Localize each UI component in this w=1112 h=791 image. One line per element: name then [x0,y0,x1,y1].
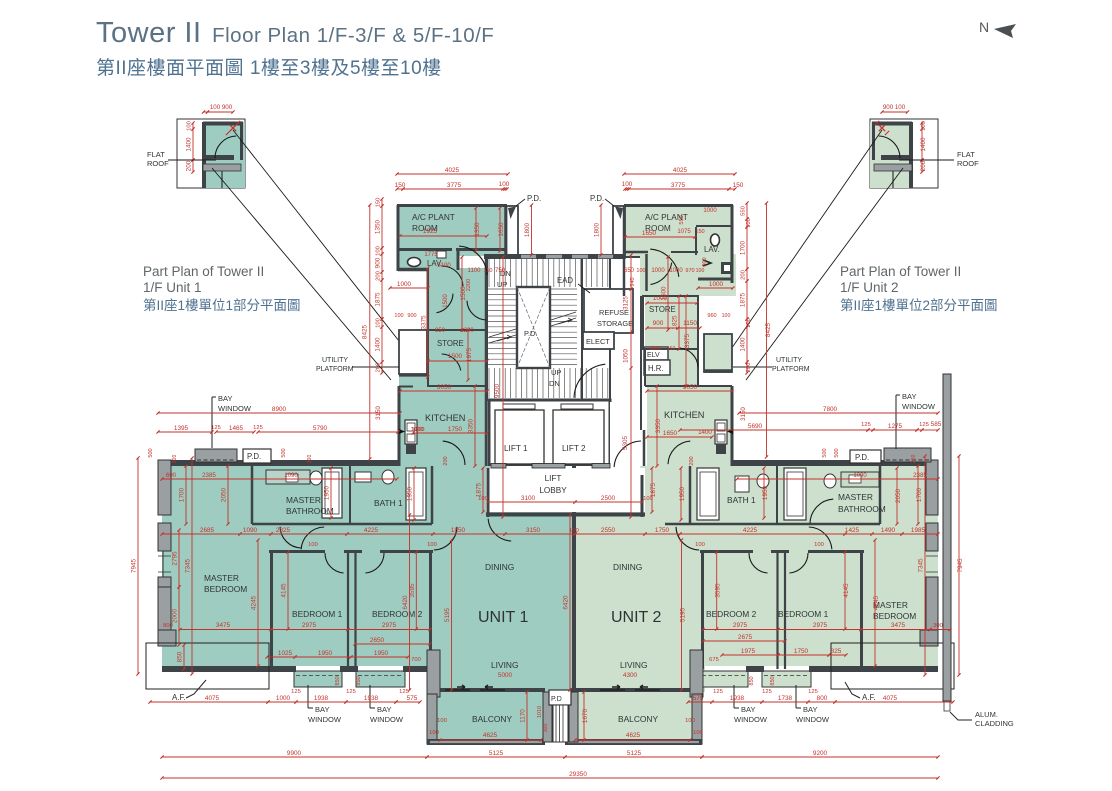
svg-text:1/F Unit 2: 1/F Unit 2 [840,280,899,295]
svg-text:675: 675 [709,657,719,663]
svg-text:LAV.: LAV. [704,245,720,254]
svg-text:1170: 1170 [520,709,527,723]
svg-text:1938: 1938 [730,695,745,702]
svg-text:100 900: 100 900 [210,104,233,111]
svg-text:UNIT 1: UNIT 1 [478,609,528,626]
svg-text:PLATFORM: PLATFORM [316,366,354,373]
svg-text:200: 200 [172,455,178,464]
svg-text:A.F.: A.F. [862,693,876,702]
svg-text:500: 500 [148,448,154,457]
svg-text:125: 125 [346,689,356,695]
svg-text:125: 125 [253,425,263,431]
svg-text:3050: 3050 [683,384,698,391]
svg-text:UNIT 2: UNIT 2 [611,609,661,626]
svg-text:9500: 9500 [494,383,501,398]
svg-text:FLAT: FLAT [957,150,975,159]
svg-text:BAY: BAY [218,394,232,403]
svg-text:3150: 3150 [740,407,747,421]
svg-text:2000: 2000 [172,608,179,623]
svg-text:Part Plan of Tower II: Part Plan of Tower II [840,264,961,279]
svg-text:575: 575 [407,695,418,702]
svg-text:200: 200 [920,160,927,171]
svg-text:1750: 1750 [655,527,670,534]
svg-text:8900: 8900 [272,406,287,413]
svg-text:P.D.: P.D. [527,194,541,203]
svg-text:900: 900 [653,320,664,327]
svg-text:2975: 2975 [733,622,748,629]
svg-text:1100: 1100 [468,268,482,274]
svg-text:BATHROOM: BATHROOM [838,504,886,514]
svg-text:1400: 1400 [920,137,927,152]
svg-text:1000: 1000 [709,281,724,288]
svg-text:5125: 5125 [627,750,642,757]
svg-text:P.D.: P.D. [855,453,869,462]
svg-text:200: 200 [911,455,917,464]
svg-text:4145: 4145 [843,583,850,598]
svg-text:3350: 3350 [468,418,475,433]
svg-text:900: 900 [375,257,382,268]
svg-text:100: 100 [394,313,403,319]
svg-text:550: 550 [741,206,747,216]
svg-text:5195: 5195 [444,607,451,622]
svg-text:1650: 1650 [642,230,657,237]
svg-text:ROOF: ROOF [147,159,169,168]
svg-text:1950: 1950 [407,486,414,501]
svg-text:4625: 4625 [483,732,498,739]
svg-text:4225: 4225 [743,527,758,534]
svg-text:1000: 1000 [669,268,683,274]
svg-text:200: 200 [741,270,747,280]
svg-text:KITCHEN: KITCHEN [664,410,704,420]
svg-text:MASTER: MASTER [838,492,873,502]
svg-text:1465: 1465 [229,425,244,432]
svg-text:1395: 1395 [174,425,189,432]
svg-text:2975: 2975 [813,622,828,629]
svg-text:5790: 5790 [313,425,328,432]
svg-text:2795: 2795 [172,551,179,566]
svg-text:1000: 1000 [703,208,717,214]
svg-text:500: 500 [834,448,840,457]
svg-text:4025: 4025 [673,167,688,174]
svg-text:750: 750 [495,268,506,274]
svg-text:1775: 1775 [424,252,438,258]
svg-text:BAY: BAY [315,705,329,714]
svg-text:1750: 1750 [448,426,463,433]
svg-text:P.D.: P.D. [590,194,604,203]
svg-text:125: 125 [861,422,871,428]
svg-text:850: 850 [770,676,776,685]
svg-text:1800: 1800 [524,222,531,237]
svg-text:300: 300 [933,623,943,629]
svg-text:4145: 4145 [281,583,288,598]
svg-text:BATH 1: BATH 1 [374,498,403,508]
svg-text:200: 200 [443,456,449,465]
svg-text:BEDROOM 1: BEDROOM 1 [778,609,829,619]
svg-text:1050: 1050 [623,349,630,363]
svg-text:WINDOW: WINDOW [370,715,404,724]
svg-text:3100: 3100 [521,495,536,502]
svg-text:200: 200 [746,363,752,373]
svg-text:4245: 4245 [251,595,258,610]
svg-text:1938: 1938 [314,695,329,702]
svg-text:125: 125 [713,689,723,695]
svg-text:150: 150 [695,229,704,235]
svg-text:A.F.: A.F. [172,693,186,702]
svg-text:1500: 1500 [443,294,449,308]
svg-text:2385: 2385 [202,472,216,479]
svg-text:1400: 1400 [186,137,193,152]
svg-text:1010: 1010 [537,706,543,718]
svg-text:ALUM.: ALUM. [975,710,998,719]
svg-text:300: 300 [543,724,549,733]
svg-text:900: 900 [702,257,708,266]
svg-text:100: 100 [696,268,705,274]
svg-text:5100: 5100 [437,263,451,269]
svg-text:BEDROOM: BEDROOM [204,584,247,594]
svg-text:3150: 3150 [375,406,382,420]
svg-text:1875: 1875 [740,292,747,307]
svg-text:850: 850 [435,328,446,334]
svg-text:1650: 1650 [498,222,505,237]
svg-text:100: 100 [636,268,645,274]
svg-text:UP: UP [551,368,561,377]
svg-text:1950: 1950 [762,485,769,500]
svg-text:1875: 1875 [375,292,382,307]
svg-text:8425: 8425 [362,324,369,339]
svg-text:500: 500 [822,448,828,457]
svg-text:1700: 1700 [740,240,747,255]
svg-text:825: 825 [831,648,842,655]
svg-text:1975: 1975 [466,347,473,362]
svg-text:110: 110 [484,268,493,274]
svg-text:100: 100 [693,730,703,736]
svg-text:9900: 9900 [287,750,302,757]
svg-text:1000: 1000 [649,346,662,352]
svg-text:BATH 1: BATH 1 [727,495,756,505]
svg-text:FLAT: FLAT [147,150,165,159]
svg-text:200: 200 [186,160,193,171]
svg-text:3050: 3050 [437,384,452,391]
svg-text:DINING: DINING [613,562,642,572]
svg-text:EAD: EAD [557,276,573,285]
svg-text:1000: 1000 [276,695,291,702]
svg-text:Part Plan of Tower II: Part Plan of Tower II [143,264,264,279]
svg-text:MASTER: MASTER [286,495,321,505]
svg-text:1500: 1500 [661,286,668,301]
svg-text:1075: 1075 [677,229,691,235]
svg-text:KITCHEN: KITCHEN [425,413,465,423]
svg-text:200: 200 [307,455,313,464]
svg-text:125: 125 [211,425,221,431]
svg-text:100: 100 [308,542,318,548]
svg-text:650: 650 [624,268,635,274]
svg-text:800: 800 [817,695,828,702]
svg-text:N: N [979,19,989,35]
svg-text:100: 100 [722,313,731,319]
svg-text:1000: 1000 [397,281,412,288]
svg-text:BEDROOM 2: BEDROOM 2 [706,609,757,619]
svg-text:LOBBY: LOBBY [539,486,567,495]
svg-text:1750: 1750 [794,648,809,655]
svg-text:1150: 1150 [683,320,697,327]
svg-text:7945: 7945 [131,558,138,573]
svg-text:1275: 1275 [888,423,903,430]
svg-text:3375: 3375 [684,333,691,348]
svg-text:800: 800 [163,623,173,629]
svg-text:BAY: BAY [902,392,916,401]
svg-text:1400: 1400 [375,337,382,352]
svg-text:5125: 5125 [489,750,504,757]
svg-text:550: 550 [679,215,685,224]
svg-text:2050: 2050 [221,487,228,502]
svg-text:WINDOW: WINDOW [796,715,830,724]
svg-text:850: 850 [177,651,184,662]
svg-text:100: 100 [376,318,382,328]
svg-text:4225: 4225 [364,527,379,534]
svg-text:UP: UP [497,280,507,289]
svg-text:ELECT: ELECT [586,337,610,346]
svg-text:125: 125 [919,422,929,428]
svg-text:3775: 3775 [671,182,686,189]
svg-text:2550: 2550 [601,527,616,534]
svg-text:WINDOW: WINDOW [902,402,936,411]
svg-text:DN: DN [549,379,560,388]
svg-text:3350: 3350 [655,418,662,433]
svg-text:2500: 2500 [601,495,616,502]
svg-text:29350: 29350 [569,771,587,778]
svg-text:575: 575 [693,695,704,702]
svg-text:1400: 1400 [698,429,712,436]
svg-text:150: 150 [667,346,676,352]
svg-text:3775: 3775 [447,182,462,189]
svg-text:100: 100 [429,730,439,736]
svg-text:WINDOW: WINDOW [218,404,252,413]
svg-text:P.D: P.D [551,696,562,703]
svg-text:UTILITY: UTILITY [776,357,802,364]
svg-text:850: 850 [749,676,755,685]
svg-text:150: 150 [376,198,382,208]
svg-text:第II座樓面平面圖 1樓至3樓及5樓至10樓: 第II座樓面平面圖 1樓至3樓及5樓至10樓 [96,57,442,79]
svg-text:A/C PLANT: A/C PLANT [412,212,455,222]
svg-text:100: 100 [376,246,382,256]
svg-text:3375: 3375 [420,315,427,330]
svg-text:STORE: STORE [649,305,676,314]
svg-text:CLADDING: CLADDING [975,719,1014,728]
svg-text:1500: 1500 [448,353,463,360]
svg-text:3595: 3595 [715,583,722,598]
svg-text:P.D.: P.D. [247,452,261,461]
svg-text:4075: 4075 [205,695,220,702]
svg-text:200: 200 [376,271,382,281]
svg-text:LIVING: LIVING [620,660,647,670]
svg-text:9200: 9200 [813,750,828,757]
svg-text:1985: 1985 [911,527,926,534]
svg-text:5195: 5195 [680,607,687,622]
svg-text:BEDROOM 1: BEDROOM 1 [292,609,343,619]
svg-text:DINING: DINING [485,562,514,572]
svg-text:LIFT 2: LIFT 2 [562,444,586,453]
svg-text:100: 100 [685,718,695,724]
svg-text:100: 100 [695,542,705,548]
svg-text:1875: 1875 [650,482,657,497]
svg-text:UTILITY: UTILITY [322,357,348,364]
svg-text:1000: 1000 [651,268,665,274]
svg-text:3150: 3150 [526,527,541,534]
svg-text:STORAGE: STORAGE [597,319,633,328]
svg-text:BATHROOM: BATHROOM [286,506,334,516]
svg-text:1850: 1850 [451,527,466,534]
svg-text:BAY: BAY [803,705,817,714]
svg-text:1025: 1025 [278,650,293,657]
svg-text:1350: 1350 [474,222,481,237]
svg-text:100: 100 [499,181,510,188]
svg-text:1425: 1425 [845,527,860,534]
svg-text:BEDROOM: BEDROOM [873,611,916,621]
svg-text:1670: 1670 [582,708,589,723]
svg-text:6420: 6420 [563,595,570,610]
svg-text:600: 600 [166,473,177,479]
svg-text:3595: 3595 [409,583,416,598]
svg-text:3475: 3475 [216,622,231,629]
svg-text:1350: 1350 [375,219,382,234]
svg-text:1800: 1800 [594,222,601,237]
svg-text:960: 960 [707,313,716,319]
svg-text:1490: 1490 [881,527,896,534]
svg-text:2975: 2975 [382,622,397,629]
svg-text:3475: 3475 [891,622,906,629]
svg-text:MASTER: MASTER [204,573,239,583]
svg-text:7945: 7945 [957,558,964,573]
svg-text:1950: 1950 [374,650,389,657]
svg-text:3125: 3125 [623,296,630,310]
svg-text:8425: 8425 [765,322,772,337]
svg-text:ROOF: ROOF [957,159,979,168]
svg-text:4300: 4300 [623,672,638,679]
svg-text:1950: 1950 [324,485,331,500]
svg-text:BALCONY: BALCONY [472,714,512,724]
svg-text:1650: 1650 [663,430,678,437]
svg-text:1738: 1738 [778,695,793,702]
svg-text:2685: 2685 [200,527,215,534]
svg-text:1825: 1825 [672,315,679,330]
svg-text:H.R.: H.R. [648,364,664,373]
svg-text:900: 900 [407,313,416,319]
svg-text:7345: 7345 [918,558,925,573]
svg-text:150: 150 [733,182,744,189]
svg-text:500: 500 [281,448,287,457]
svg-text:BAY: BAY [377,705,391,714]
svg-text:LIFT 1: LIFT 1 [504,444,528,453]
svg-text:第II座1樓單位1部分平面圖: 第II座1樓單位1部分平面圖 [143,297,301,313]
svg-text:585: 585 [931,421,942,428]
svg-text:2825: 2825 [276,527,291,534]
svg-text:100: 100 [814,542,824,548]
svg-text:第II座1樓單位2部分平面圖: 第II座1樓單位2部分平面圖 [840,297,998,313]
svg-text:4625: 4625 [626,732,641,739]
svg-text:5000: 5000 [498,672,513,679]
svg-text:LIVING: LIVING [491,660,518,670]
svg-text:4025: 4025 [445,167,460,174]
svg-text:BEDROOM 2: BEDROOM 2 [372,609,423,619]
svg-text:2975: 2975 [302,622,317,629]
svg-text:2650: 2650 [370,637,385,644]
svg-text:1925: 1925 [423,228,438,235]
svg-text:7800: 7800 [823,406,838,413]
svg-text:BALCONY: BALCONY [618,714,658,724]
svg-text:BAY: BAY [741,705,755,714]
svg-text:WINDOW: WINDOW [308,715,342,724]
svg-text:100: 100 [427,542,437,548]
svg-text:4075: 4075 [883,695,898,702]
svg-text:1500: 1500 [460,286,467,301]
svg-text:LIFT: LIFT [545,474,562,483]
svg-text:1950: 1950 [318,650,333,657]
svg-text:2050: 2050 [895,488,902,503]
svg-text:1090: 1090 [853,473,867,479]
svg-text:1700: 1700 [179,487,186,502]
svg-text:1/F Unit 1: 1/F Unit 1 [143,280,202,295]
svg-text:970: 970 [685,268,694,274]
svg-text:1090: 1090 [284,473,298,479]
svg-text:200: 200 [376,363,382,373]
svg-text:100: 100 [437,718,447,724]
svg-text:1300: 1300 [412,427,425,433]
svg-text:200: 200 [689,456,695,465]
svg-text:100: 100 [187,121,193,131]
svg-text:125: 125 [291,689,301,695]
svg-text:P.D.: P.D. [524,329,537,338]
svg-text:2675: 2675 [738,634,753,641]
svg-text:1938: 1938 [364,695,379,702]
svg-text:900 100: 900 100 [883,104,906,111]
svg-text:700: 700 [411,657,421,663]
svg-text:WINDOW: WINDOW [734,715,768,724]
svg-text:100: 100 [569,528,579,534]
svg-text:PLATFORM: PLATFORM [772,366,810,373]
svg-text:850: 850 [335,676,341,685]
svg-text:4245: 4245 [873,595,880,610]
svg-text:7345: 7345 [185,558,192,573]
svg-text:100: 100 [622,181,633,188]
svg-text:1975: 1975 [741,648,756,655]
svg-text:850: 850 [356,676,362,685]
svg-text:1400: 1400 [740,337,747,352]
svg-text:1700: 1700 [916,487,923,502]
svg-text:5305: 5305 [622,435,629,450]
svg-text:1875: 1875 [476,482,483,497]
svg-text:ELV: ELV [647,352,660,359]
svg-text:1950: 1950 [679,486,686,501]
svg-text:1090: 1090 [243,527,258,534]
svg-text:125: 125 [762,689,772,695]
svg-text:STORE: STORE [437,339,464,348]
svg-text:5690: 5690 [748,423,763,430]
